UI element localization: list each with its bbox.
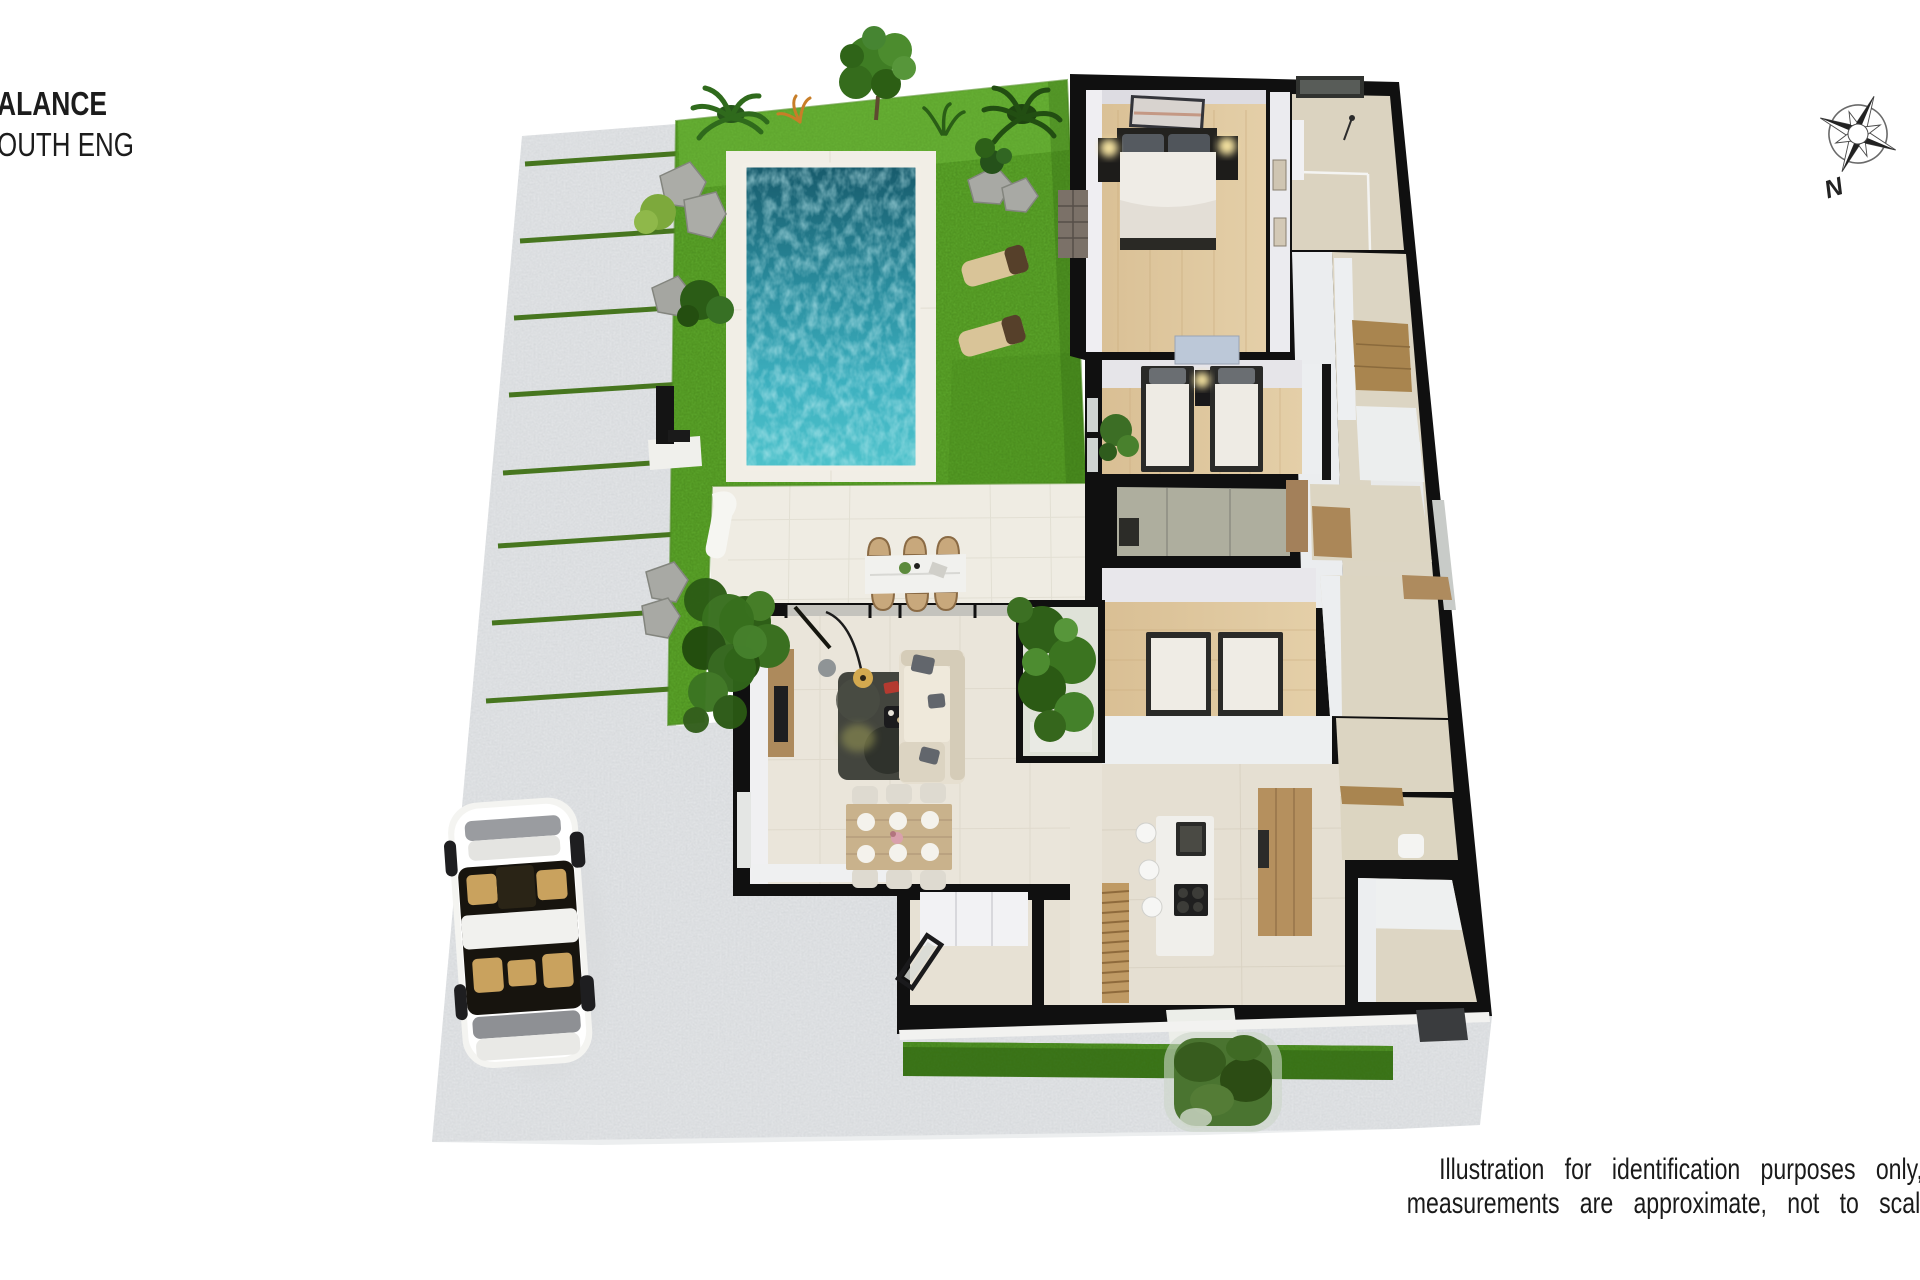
svg-text:OUTH ENG: OUTH ENG xyxy=(0,126,134,163)
svg-text:ALANCE: ALANCE xyxy=(0,85,107,122)
svg-text:measurements are approximate,: measurements are approximate, not to sca… xyxy=(1407,1186,1920,1220)
svg-text:Illustration for identificatio: Illustration for identification purposes… xyxy=(1439,1152,1920,1186)
